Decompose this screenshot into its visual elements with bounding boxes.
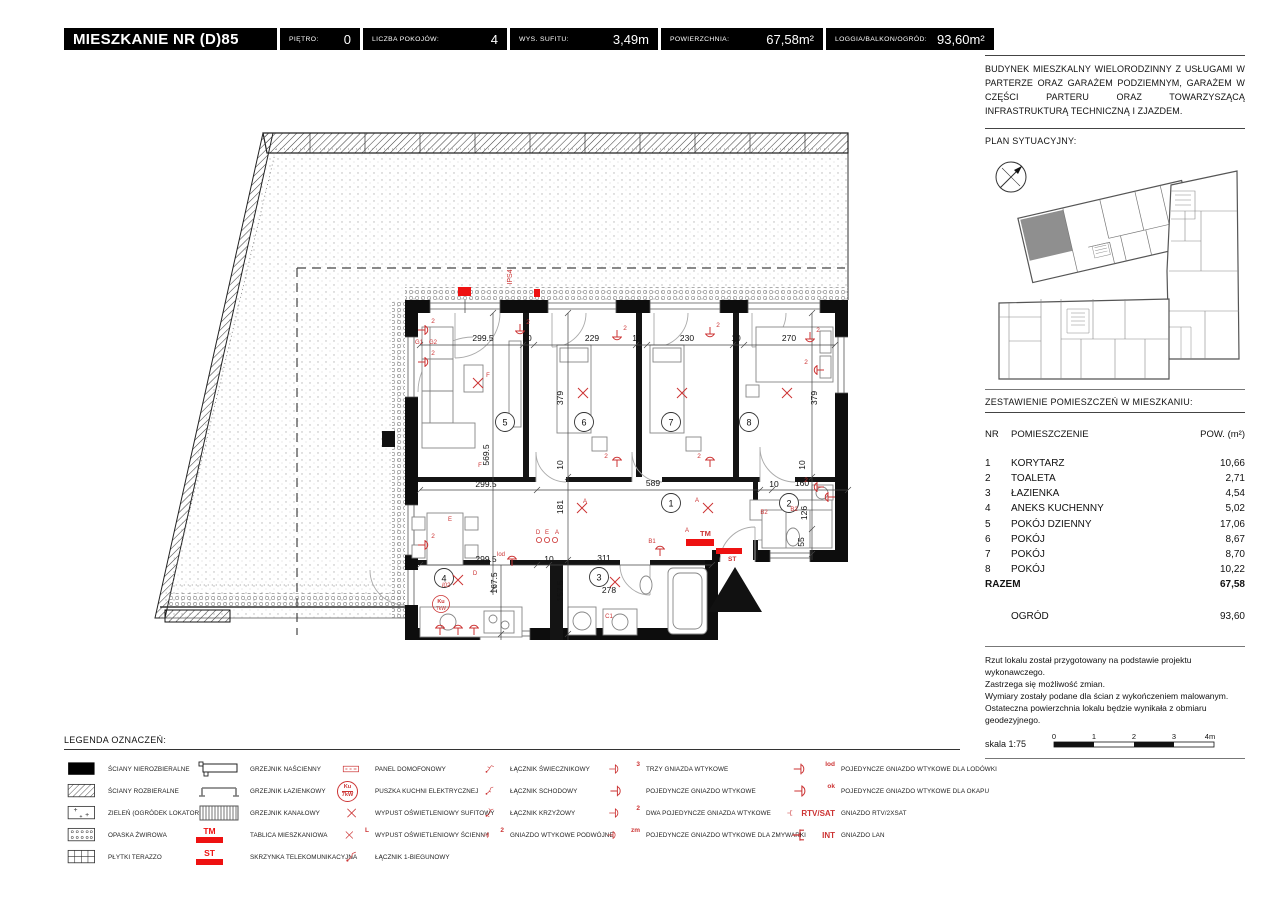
legend-item-label: ŚCIANY ROZBIERALNE [108, 788, 179, 795]
legend-item: GRZEJNIK NAŚCIENNY [196, 758, 357, 780]
table-total-row: RAZEM 67,58 [985, 577, 1245, 592]
legend-item: RTV/SATGNIAZDO RTV/2XSAT [783, 802, 997, 824]
socket-icon [600, 782, 640, 800]
legend-item-label: POJEDYNCZE GNIAZDO WTYKOWE DLA OKAPU [841, 788, 989, 795]
svg-text:B1: B1 [648, 539, 656, 545]
building-lower [999, 299, 1169, 379]
svg-text:5: 5 [502, 418, 507, 428]
svg-text:7: 7 [668, 418, 673, 428]
header-field-label: LOGGIA/BALKON/OGRÓD: [835, 36, 927, 43]
table-cell: 4 [985, 501, 1011, 516]
table-row: 4ANEKS KUCHENNY5,02 [985, 501, 1245, 516]
room-7-marker: 7 [662, 413, 681, 432]
electrical-box [382, 431, 395, 447]
red-marker [458, 287, 471, 296]
scale-row: skala 1:75 0 1 2 3 4m [985, 732, 1245, 750]
table-cell: 4,54 [1226, 486, 1245, 501]
col-nr: NR [985, 429, 1011, 440]
dim-label: 589 [646, 478, 660, 488]
legend-item-label: PUSZKA KUCHNI ELEKTRYCZNEJ [375, 788, 478, 795]
legend-item-label: PŁYTKI TERAZZO [108, 854, 162, 861]
dim-label: 299.5 [475, 554, 497, 564]
legend-item: POJEDYNCZE GNIAZDO WTYKOWE [600, 780, 806, 802]
dim-label: 270 [782, 333, 796, 343]
table-row: 8POKÓJ10,22 [985, 562, 1245, 577]
svg-text:D: D [473, 571, 478, 577]
dim-label: 569.5 [481, 444, 491, 466]
table-cell: 17,06 [1220, 517, 1245, 532]
svg-text:F: F [486, 373, 490, 379]
socket-rtv-icon: RTV/SAT [783, 804, 835, 822]
legend-item: PŁYTKI TERAZZO [64, 846, 212, 868]
terrazzo-icon [64, 848, 102, 866]
svg-text:2: 2 [431, 350, 435, 357]
legend-item-label: POJEDYNCZE GNIAZDO WTYKOWE DLA ZMYWARKI [646, 832, 806, 839]
header-field-label: LICZBA POKOJÓW: [372, 36, 439, 43]
svg-text:2: 2 [604, 453, 608, 460]
header-field: POWIERZCHNIA:67,58m² [661, 28, 823, 50]
table-row: 6POKÓJ8,67 [985, 532, 1245, 547]
col-area: POW. (m²) [1200, 429, 1245, 440]
header-field: PIĘTRO:0 [280, 28, 360, 50]
table-cell: POKÓJ [1011, 547, 1226, 562]
tm-label: TM [700, 529, 711, 538]
table-cell: 7 [985, 547, 1011, 562]
floor-plan: 299.5 10 229 10 230 10 270 299.5 589 10 … [60, 115, 970, 675]
svg-text:2: 2 [526, 319, 530, 326]
dim-label: 229 [585, 333, 599, 343]
room-1-marker: 1 [662, 494, 681, 513]
compass-icon [996, 162, 1026, 192]
socket-icon: zm [600, 826, 640, 844]
col-name: POMIESZCZENIE [1011, 429, 1200, 440]
legend-column: ŁĄCZNIK ŚWIECZNIKOWYŁĄCZNIK SCHODOWYŁĄCZ… [478, 758, 614, 846]
socket-icon: lod [783, 760, 835, 778]
legend-item-label: ŁĄCZNIK ŚWIECZNIKOWY [510, 766, 590, 773]
svg-text:1: 1 [668, 499, 673, 509]
legend-symbol-tag: INT [822, 831, 835, 840]
legend-symbol-tag: 3 [636, 761, 640, 768]
svg-text:2: 2 [716, 322, 720, 329]
legend-item-label: GNIAZDO LAN [841, 832, 885, 839]
radiator-bath-icon [196, 782, 244, 800]
building-description: BUDYNEK MIESZKALNY WIELORODZINNY Z USŁUG… [985, 63, 1245, 119]
header-fields: PIĘTRO:0LICZBA POKOJÓW:4WYS. SUFITU:3,49… [280, 28, 994, 50]
dim-label: 299.5 [472, 333, 494, 343]
table-cell: 8 [985, 562, 1011, 577]
table-cell: 8,67 [1226, 532, 1245, 547]
room-table-header: NR POMIESZCZENIE POW. (m²) [985, 429, 1245, 440]
table-cell: TOALETA [1011, 471, 1226, 486]
header-field-value: 67,58m² [756, 32, 814, 47]
legend-item: ŁĄCZNIK KRZYŻOWY [478, 802, 614, 824]
table-cell: POKÓJ [1011, 562, 1220, 577]
svg-text:Ku: Ku [437, 599, 444, 605]
legend-item: okPOJEDYNCZE GNIAZDO WTYKOWE DLA OKAPU [783, 780, 997, 802]
st-badge-icon: ST [196, 849, 244, 865]
table-row: 1KORYTARZ10,66 [985, 456, 1245, 471]
dim-label: 379 [555, 391, 565, 405]
gravel-strip [405, 287, 848, 300]
legend-item: ŚCIANY ROZBIERALNE [64, 780, 212, 802]
svg-text:2: 2 [1132, 732, 1136, 741]
legend-item-label: GNIAZDO RTV/2XSAT [841, 810, 907, 817]
legend-item-label: ŚCIANY NIEROZBIERALNE [108, 766, 190, 773]
legend-item: 2DWA POJEDYNCZE GNIAZDA WTYKOWE [600, 802, 806, 824]
legend-item-label: DWA POJEDYNCZE GNIAZDA WTYKOWE [646, 810, 771, 817]
svg-text:A: A [555, 530, 559, 536]
svg-text:2: 2 [804, 477, 808, 484]
legend-item: 2GNIAZDO WTYKOWE PODWÓJNE [478, 824, 614, 846]
site-plan-heading: PLAN SYTUACYJNY: [985, 136, 1245, 146]
table-cell: 6 [985, 532, 1011, 547]
table-row: 3ŁAZIENKA4,54 [985, 486, 1245, 501]
legend-column: ŚCIANY NIEROZBIERALNEŚCIANY ROZBIERALNEZ… [64, 758, 212, 868]
legend-item: WYPUST OŚWIETLENIOWY SUFITOWY [337, 802, 495, 824]
legend-item: OPASKA ŻWIROWA [64, 824, 212, 846]
header-field-value: 93,60m² [927, 32, 985, 47]
room-6-marker: 6 [575, 413, 594, 432]
disclaimer-notes: Rzut lokalu został przygotowany na podst… [985, 654, 1245, 726]
dim-label: 181 [555, 500, 565, 514]
table-cell: KORYTARZ [1011, 456, 1220, 471]
legend-item: Ku7kWPUSZKA KUCHNI ELEKTRYCZNEJ [337, 780, 495, 802]
legend-item: ŚCIANY NIEROZBIERALNE [64, 758, 212, 780]
legend-item-label: ŁĄCZNIK 1-BIEGUNOWY [375, 854, 450, 861]
svg-text:6: 6 [581, 418, 586, 428]
header-field-label: PIĘTRO: [289, 36, 319, 43]
legend-item-label: PANEL DOMOFONOWY [375, 766, 446, 773]
table-cell: 10,66 [1220, 456, 1245, 471]
dim-label: 157.5 [555, 580, 565, 602]
red-marker [534, 289, 540, 297]
legend-item: 3TRZY GNIAZDA WTYKOWE [600, 758, 806, 780]
legend-item: GRZEJNIK ŁAZIENKOWY [196, 780, 357, 802]
svg-text:E: E [545, 530, 549, 536]
legend-symbol-tag: zm [631, 827, 640, 834]
legend-item: GRZEJNIK KANAŁOWY [196, 802, 357, 824]
svg-text:3: 3 [596, 573, 601, 583]
legend: LEGENDA OZNACZEŃ: ŚCIANY NIEROZBIERALNEŚ… [64, 735, 960, 876]
legend-item-label: WYPUST OŚWIETLENIOWY ŚCIENNY [375, 832, 489, 839]
legend-item-label: GRZEJNIK NAŚCIENNY [250, 766, 321, 773]
switch-stairs-icon [478, 782, 504, 800]
legend-item: PANEL DOMOFONOWY [337, 758, 495, 780]
svg-text:A: A [685, 528, 689, 534]
header-field-label: WYS. SUFITU: [519, 36, 569, 43]
legend-heading: LEGENDA OZNACZEŃ: [64, 735, 960, 745]
table-cell: 10,22 [1220, 562, 1245, 577]
dim-label: 10 [769, 479, 779, 489]
room-3-marker: 3 [590, 568, 609, 587]
legend-item: ZIELEŃ (OGRÓDEK LOKATORSKI) [64, 802, 212, 824]
header-field-value: 0 [334, 32, 351, 47]
header-field: LOGGIA/BALKON/OGRÓD:93,60m² [826, 28, 994, 50]
dim-label: 126 [799, 506, 809, 520]
header-field: LICZBA POKOJÓW:4 [363, 28, 507, 50]
svg-text:3: 3 [1172, 732, 1176, 741]
legend-symbol-tag: lod [825, 761, 835, 768]
legend-item-label: OPASKA ŻWIROWA [108, 832, 167, 839]
socket-icon: ok [783, 782, 835, 800]
legend-symbol-tag: L [365, 827, 369, 834]
legend-symbol-tag: ok [827, 783, 835, 790]
scale-bar: 0 1 2 3 4m [1052, 732, 1218, 750]
dim-label: 230 [680, 333, 694, 343]
table-row: 5POKÓJ DZIENNY17,06 [985, 517, 1245, 532]
legend-item: TMTABLICA MIESZKANIOWA [196, 824, 357, 846]
svg-text:2: 2 [431, 318, 435, 325]
header-field-label: POWIERZCHNIA: [670, 36, 729, 43]
dim-label: 311 [597, 553, 611, 563]
legend-symbol-tag: RTV/SAT [801, 809, 835, 818]
plan-sheet: { "header": { "title": "MIESZKANIE NR (D… [0, 0, 1280, 905]
svg-text:2: 2 [697, 453, 701, 460]
site-plan-drawing [985, 151, 1245, 383]
radiator-duct-icon [196, 804, 244, 822]
legend-item: INTGNIAZDO LAN [783, 824, 997, 846]
table-cell: 1 [985, 456, 1011, 471]
switch-chandelier-icon [478, 760, 504, 778]
table-cell: ANEKS KUCHENNY [1011, 501, 1226, 516]
sidebar: BUDYNEK MIESZKALNY WIELORODZINNY Z USŁUG… [985, 55, 1245, 759]
svg-text:A: A [695, 498, 699, 504]
socket-icon: 3 [600, 760, 640, 778]
legend-item-label: ŁĄCZNIK KRZYŻOWY [510, 810, 575, 817]
table-cell: 5 [985, 517, 1011, 532]
socket-icon: 2 [478, 826, 504, 844]
dim-label: 278 [602, 585, 616, 595]
table-cell: ŁAZIENKA [1011, 486, 1226, 501]
table-cell: 2 [985, 471, 1011, 486]
intercom-icon [337, 760, 369, 778]
table-row: 2TOALETA2,71 [985, 471, 1245, 486]
room-table: NR POMIESZCZENIE POW. (m²) 1KORYTARZ10,6… [985, 429, 1245, 624]
svg-text:4m: 4m [1205, 732, 1215, 741]
legend-item-label: GNIAZDO WTYKOWE PODWÓJNE [510, 832, 614, 839]
dim-label: 10 [632, 333, 642, 343]
svg-text:7kW: 7kW [436, 606, 446, 612]
svg-text:G1: G1 [415, 340, 424, 346]
legend-column: lodPOJEDYNCZE GNIAZDO WTYKOWE DLA LODÓWK… [783, 758, 997, 846]
legend-item: STSKRZYNKA TELEKOMUNIKACYJNA [196, 846, 357, 868]
svg-text:G2: G2 [429, 340, 438, 346]
legend-item-label: ŁĄCZNIK SCHODOWY [510, 788, 577, 795]
header-bar: MIESZKANIE NR (D)85 PIĘTRO:0LICZBA POKOJ… [64, 28, 960, 50]
svg-text:2: 2 [623, 325, 627, 332]
apartment-title: MIESZKANIE NR (D)85 [64, 28, 277, 50]
legend-item-label: GRZEJNIK KANAŁOWY [250, 810, 320, 817]
svg-text:B2: B2 [790, 507, 798, 513]
switch-1-icon [337, 848, 369, 866]
svg-text:F: F [478, 463, 482, 469]
svg-text:lod: lod [497, 552, 505, 558]
table-cell: POKÓJ DZIENNY [1011, 517, 1220, 532]
tm-badge-icon: TM [196, 827, 244, 843]
legend-item-label: POJEDYNCZE GNIAZDO WTYKOWE DLA LODÓWKI [841, 766, 997, 773]
note-line: Zastrzega się możliwość zmian. [985, 678, 1245, 690]
table-cell: POKÓJ [1011, 532, 1226, 547]
table-garden-row: OGRÓD 93,60 [985, 609, 1245, 624]
legend-symbol-tag: 2 [500, 827, 504, 834]
wall-removable-icon [64, 782, 102, 800]
legend-item: zmPOJEDYNCZE GNIAZDO WTYKOWE DLA ZMYWARK… [600, 824, 806, 846]
ips-label: IPS4 [507, 269, 514, 284]
dim-label: 167.5 [489, 572, 499, 594]
svg-text:8: 8 [746, 418, 751, 428]
header-field: WYS. SUFITU:3,49m [510, 28, 658, 50]
header-field-value: 4 [481, 32, 498, 47]
rooms-heading: ZESTAWIENIE POMIESZCZEŃ W MIESZKANIU: [985, 397, 1245, 407]
table-row: 7POKÓJ8,70 [985, 547, 1245, 562]
legend-item: ŁĄCZNIK ŚWIECZNIKOWY [478, 758, 614, 780]
legend-item-label: TABLICA MIESZKANIOWA [250, 832, 328, 839]
svg-text:E: E [448, 517, 452, 523]
dim-label: 10 [555, 460, 565, 470]
lamp-x-icon: L [337, 826, 369, 844]
dim-label: 55 [796, 537, 806, 547]
room-5-marker: 5 [496, 413, 515, 432]
note-line: Wymiary zostały podane dla ścian z wykoń… [985, 690, 1245, 702]
dim-label: 379 [809, 391, 819, 405]
legend-item-label: GRZEJNIK ŁAZIENKOWY [250, 788, 326, 795]
svg-text:4: 4 [441, 574, 446, 584]
legend-item: ŁĄCZNIK SCHODOWY [478, 780, 614, 802]
socket-icon: 2 [600, 804, 640, 822]
table-cell: 8,70 [1226, 547, 1245, 562]
table-cell: 5,02 [1226, 501, 1245, 516]
dim-label: 10 [544, 554, 554, 564]
legend-item: ŁĄCZNIK 1-BIEGUNOWY [337, 846, 495, 868]
switch-cross-icon [478, 804, 504, 822]
note-line: Rzut lokalu został przygotowany na podst… [985, 654, 1245, 678]
room-8-marker: 8 [740, 413, 759, 432]
wall-solid-icon [64, 760, 102, 778]
legend-symbol-tag: 2 [636, 805, 640, 812]
hatched-bar [165, 610, 230, 622]
tm-bar [686, 539, 714, 546]
legend-item-label: WYPUST OŚWIETLENIOWY SUFITOWY [375, 810, 495, 817]
radiator-wall-icon [196, 760, 244, 778]
legend-column: PANEL DOMOFONOWYKu7kWPUSZKA KUCHNI ELEKT… [337, 758, 495, 868]
st-label: ST [728, 556, 736, 563]
svg-text:2: 2 [816, 327, 820, 334]
dim-label: 299.5 [475, 479, 497, 489]
header-field-value: 3,49m [603, 32, 649, 47]
dim-label: 10 [522, 333, 532, 343]
dim-label: 10 [797, 460, 807, 470]
legend-column: GRZEJNIK NAŚCIENNYGRZEJNIK ŁAZIENKOWYGRZ… [196, 758, 357, 868]
table-cell: 3 [985, 486, 1011, 501]
scale-label: skala 1:75 [985, 739, 1026, 750]
socket-rtv-icon: INT [783, 826, 835, 844]
legend-item-label: TRZY GNIAZDA WTYKOWE [646, 766, 728, 773]
svg-text:I02: I02 [442, 583, 451, 589]
kitchen-box-icon: Ku7kW [337, 781, 369, 802]
svg-text:0: 0 [1052, 732, 1056, 741]
table-cell: 2,71 [1226, 471, 1245, 486]
svg-text:D: D [536, 530, 541, 536]
gravel-icon [64, 826, 102, 844]
svg-text:B2: B2 [760, 510, 768, 516]
svg-text:2: 2 [804, 359, 808, 366]
svg-text:A: A [583, 499, 587, 505]
svg-text:1: 1 [1092, 732, 1096, 741]
building-right [1167, 171, 1239, 359]
legend-item-label: POJEDYNCZE GNIAZDO WTYKOWE [646, 788, 756, 795]
legend-item: LWYPUST OŚWIETLENIOWY ŚCIENNY [337, 824, 495, 846]
st-bar [716, 548, 742, 554]
lamp-x-icon [337, 804, 369, 822]
legend-column: 3TRZY GNIAZDA WTYKOWEPOJEDYNCZE GNIAZDO … [600, 758, 806, 846]
dim-label: 10 [731, 333, 741, 343]
svg-text:2: 2 [431, 533, 435, 540]
green-icon [64, 804, 102, 822]
electrical-layer: 22 22 22 22 22 2 G1G2 B1B2 B2C1 DE DE A … [415, 269, 835, 635]
note-line: Ostateczna powierzchnia lokalu będzie wy… [985, 702, 1245, 726]
svg-text:C1: C1 [605, 614, 613, 620]
legend-item: lodPOJEDYNCZE GNIAZDO WTYKOWE DLA LODÓWK… [783, 758, 997, 780]
